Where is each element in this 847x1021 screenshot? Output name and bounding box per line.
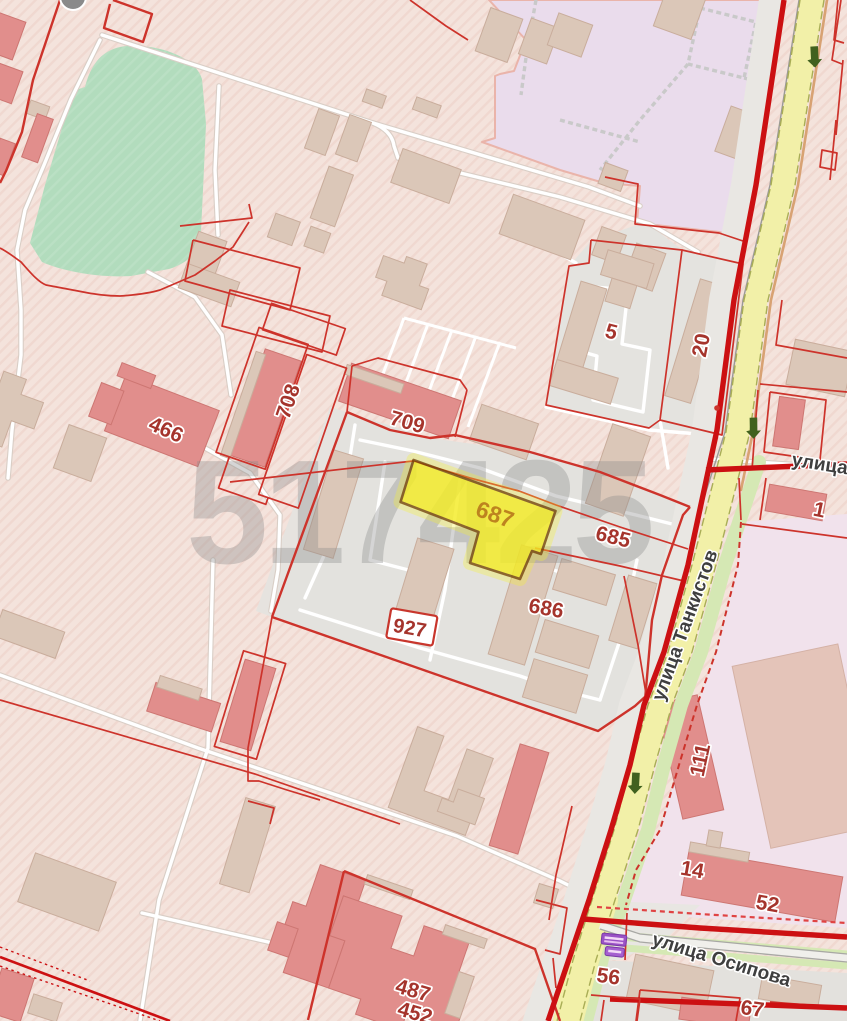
svg-text:56: 56 bbox=[595, 964, 621, 990]
svg-text:67: 67 bbox=[739, 996, 765, 1021]
svg-text:20: 20 bbox=[688, 332, 715, 359]
svg-text:14: 14 bbox=[679, 857, 706, 884]
svg-text:52: 52 bbox=[754, 891, 781, 918]
